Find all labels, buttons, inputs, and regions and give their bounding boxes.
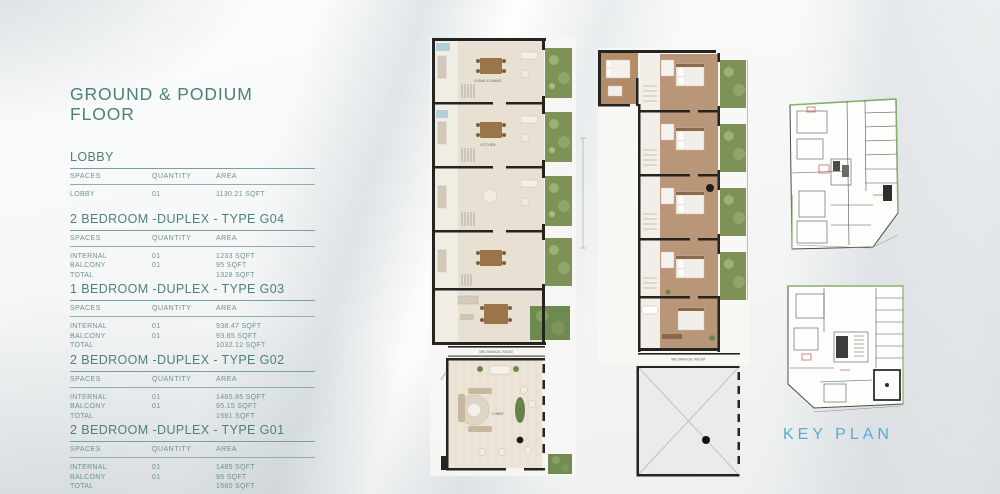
- column-header-quantity: QUANTITY: [152, 173, 216, 180]
- column-header-spaces: SPACES: [70, 376, 152, 383]
- table-heading: 2 BEDROOM -DUPLEX - TYPE G04: [70, 212, 315, 231]
- column-header-spaces: SPACES: [70, 235, 152, 242]
- column-header-spaces: SPACES: [70, 305, 152, 312]
- cell-quantity: [152, 271, 216, 281]
- cell-quantity: 01: [152, 402, 216, 412]
- cell-quantity: 01: [152, 463, 216, 473]
- keyplan-lower: [780, 276, 910, 420]
- cell-space: TOTAL: [70, 271, 152, 281]
- cell-area: 1233 SQFT: [216, 252, 315, 262]
- page-title: GROUND & PODIUM FLOOR: [70, 84, 315, 124]
- cell-quantity: [152, 482, 216, 492]
- table-header-row: SPACES QUANTITY AREA: [70, 231, 315, 247]
- floorplan-podium-right-drawing: MECHANICAL ROOM: [598, 48, 758, 483]
- cell-quantity: 01: [152, 261, 216, 271]
- cell-area: 95.15 SQFT: [216, 402, 315, 412]
- column-header-area: AREA: [216, 173, 315, 180]
- column-header-area: AREA: [216, 235, 315, 242]
- cell-space: TOTAL: [70, 482, 152, 492]
- cell-space: TOTAL: [70, 412, 152, 422]
- table-type-g03: 1 BEDROOM -DUPLEX - TYPE G03 SPACES QUAN…: [70, 282, 315, 351]
- room-label-mechanical: MECHANICAL ROOM: [671, 358, 705, 362]
- table-heading: LOBBY: [70, 150, 315, 169]
- column-header-area: AREA: [216, 376, 315, 383]
- brochure-page: GROUND & PODIUM FLOOR LOBBY SPACES QUANT…: [0, 0, 1000, 494]
- table-row: BALCONY 01 95 SQFT: [70, 261, 315, 271]
- keyplan-upper-drawing: [783, 95, 905, 255]
- table-row: BALCONY 01 95 SQFT: [70, 473, 315, 483]
- cell-area: 1581 SQFT: [216, 412, 315, 422]
- column-header-spaces: SPACES: [70, 173, 152, 180]
- room-label-kitchen: KITCHEN: [481, 143, 496, 147]
- dimension-line: [580, 138, 586, 248]
- table-heading: 2 BEDROOM -DUPLEX - TYPE G02: [70, 353, 315, 372]
- cell-space: INTERNAL: [70, 393, 152, 403]
- keyplan-upper: [783, 95, 905, 255]
- column-header-quantity: QUANTITY: [152, 305, 216, 312]
- cell-quantity: [152, 412, 216, 422]
- void-area: [637, 366, 741, 477]
- table-heading: 1 BEDROOM -DUPLEX - TYPE G03: [70, 282, 315, 301]
- cell-quantity: 01: [152, 473, 216, 483]
- cell-space: INTERNAL: [70, 463, 152, 473]
- table-row: INTERNAL 01 1485 SQFT: [70, 463, 315, 473]
- cell-space: BALCONY: [70, 402, 152, 412]
- cell-space: BALCONY: [70, 332, 152, 342]
- cell-area: 1032.12 SQFT: [216, 341, 315, 351]
- room-label-mechanical: MECHANICAL ROOM: [479, 350, 513, 354]
- cell-area: 93.65 SQFT: [216, 332, 315, 342]
- cell-space: TOTAL: [70, 341, 152, 351]
- table-type-g02: 2 BEDROOM -DUPLEX - TYPE G02 SPACES QUAN…: [70, 353, 315, 422]
- cell-quantity: 01: [152, 252, 216, 262]
- floorplan-ground-left: LIVING & DINING KITCHEN: [428, 38, 593, 478]
- cell-space: BALCONY: [70, 473, 152, 483]
- cell-area: 95 SQFT: [216, 473, 315, 483]
- keyplan-lower-drawing: [780, 276, 910, 420]
- column-header-quantity: QUANTITY: [152, 235, 216, 242]
- cell-space: LOBBY: [70, 190, 152, 200]
- table-row: INTERNAL 01 1233 SQFT: [70, 252, 315, 262]
- column-header-quantity: QUANTITY: [152, 376, 216, 383]
- table-header-row: SPACES QUANTITY AREA: [70, 372, 315, 388]
- cell-quantity: 01: [152, 322, 216, 332]
- table-row: INTERNAL 01 938.47 SQFT: [70, 322, 315, 332]
- table-row: TOTAL 1580 SQFT: [70, 482, 315, 492]
- keyplan-label: KEY PLAN: [783, 426, 893, 444]
- table-row: LOBBY 01 1130.21 SQFT: [70, 190, 315, 200]
- table-header-row: SPACES QUANTITY AREA: [70, 442, 315, 458]
- room-label-lobby: LOBBY: [492, 412, 505, 416]
- cell-area: 1485.85 SQFT: [216, 393, 315, 403]
- corner-bedroom: [600, 52, 638, 104]
- cell-quantity: 01: [152, 190, 216, 200]
- cell-space: INTERNAL: [70, 322, 152, 332]
- floorplan-ground-left-drawing: LIVING & DINING KITCHEN: [428, 38, 593, 478]
- table-row: TOTAL 1581 SQFT: [70, 412, 315, 422]
- table-row: TOTAL 1328 SQFT: [70, 271, 315, 281]
- cell-quantity: 01: [152, 332, 216, 342]
- cell-area: 1130.21 SQFT: [216, 190, 315, 200]
- room-label-living-dining: LIVING & DINING: [474, 79, 501, 83]
- floorplan-podium-right: MECHANICAL ROOM: [598, 48, 758, 483]
- column-header-quantity: QUANTITY: [152, 446, 216, 453]
- table-row: BALCONY 01 93.65 SQFT: [70, 332, 315, 342]
- table-row: BALCONY 01 95.15 SQFT: [70, 402, 315, 412]
- table-row: INTERNAL 01 1485.85 SQFT: [70, 393, 315, 403]
- cell-area: 95 SQFT: [216, 261, 315, 271]
- cell-space: BALCONY: [70, 261, 152, 271]
- cell-quantity: 01: [152, 393, 216, 403]
- column-header-area: AREA: [216, 446, 315, 453]
- cell-area: 938.47 SQFT: [216, 322, 315, 332]
- table-header-row: SPACES QUANTITY AREA: [70, 301, 315, 317]
- table-type-g01: 2 BEDROOM -DUPLEX - TYPE G01 SPACES QUAN…: [70, 423, 315, 492]
- column-header-spaces: SPACES: [70, 446, 152, 453]
- table-type-g04: 2 BEDROOM -DUPLEX - TYPE G04 SPACES QUAN…: [70, 212, 315, 281]
- cell-area: 1328 SQFT: [216, 271, 315, 281]
- table-heading: 2 BEDROOM -DUPLEX - TYPE G01: [70, 423, 315, 442]
- cell-area: 1580 SQFT: [216, 482, 315, 492]
- cell-quantity: [152, 341, 216, 351]
- table-lobby: LOBBY SPACES QUANTITY AREA LOBBY 01 1130…: [70, 150, 315, 200]
- column-header-area: AREA: [216, 305, 315, 312]
- unit-summary-panel: GROUND & PODIUM FLOOR LOBBY SPACES QUANT…: [70, 84, 315, 494]
- table-header-row: SPACES QUANTITY AREA: [70, 169, 315, 185]
- cell-area: 1485 SQFT: [216, 463, 315, 473]
- table-row: TOTAL 1032.12 SQFT: [70, 341, 315, 351]
- cell-space: INTERNAL: [70, 252, 152, 262]
